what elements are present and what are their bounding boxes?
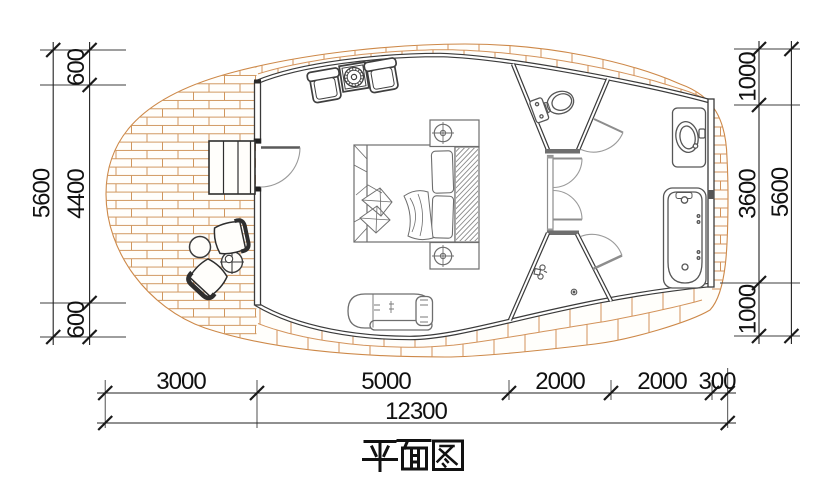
svg-text:1000: 1000 — [735, 284, 762, 334]
svg-text:600: 600 — [63, 301, 90, 339]
svg-text:300: 300 — [698, 368, 736, 395]
svg-text:600: 600 — [63, 48, 90, 86]
svg-text:1000: 1000 — [735, 52, 762, 102]
svg-text:5600: 5600 — [29, 168, 56, 218]
svg-text:3000: 3000 — [156, 368, 206, 395]
svg-text:4400: 4400 — [63, 169, 90, 219]
svg-text:3600: 3600 — [735, 169, 762, 219]
svg-text:12300: 12300 — [385, 398, 447, 425]
svg-text:5600: 5600 — [767, 167, 794, 217]
svg-text:5000: 5000 — [361, 368, 411, 395]
svg-text:2000: 2000 — [535, 368, 585, 395]
svg-text:2000: 2000 — [637, 368, 687, 395]
